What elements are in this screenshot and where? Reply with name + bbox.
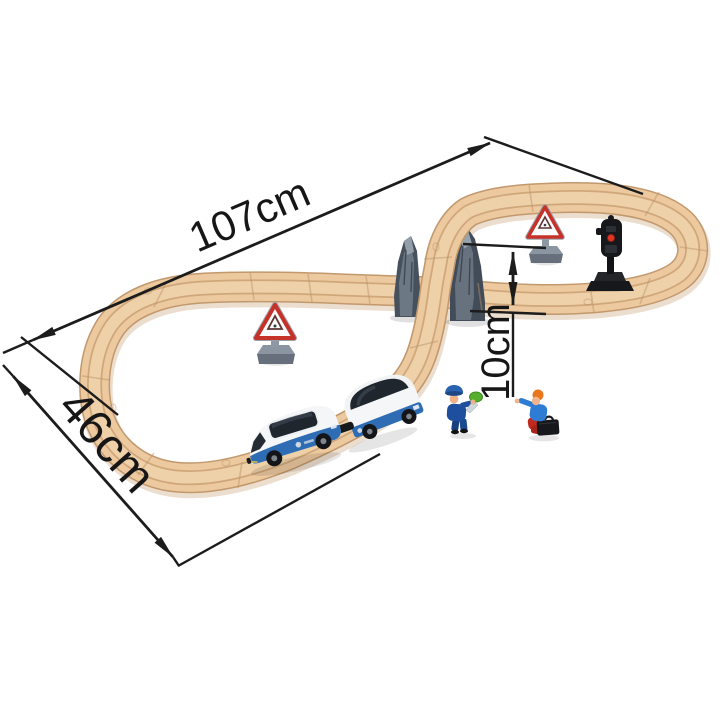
warning-sign-lower: [256, 305, 295, 366]
bridge-height-label: 10cm: [474, 303, 518, 401]
briefcase: [537, 419, 560, 435]
product-image: 107cm 46cm 10cm: [0, 0, 720, 720]
passenger-figure: [515, 390, 560, 442]
train-set-scene: 107cm 46cm 10cm: [0, 0, 720, 720]
